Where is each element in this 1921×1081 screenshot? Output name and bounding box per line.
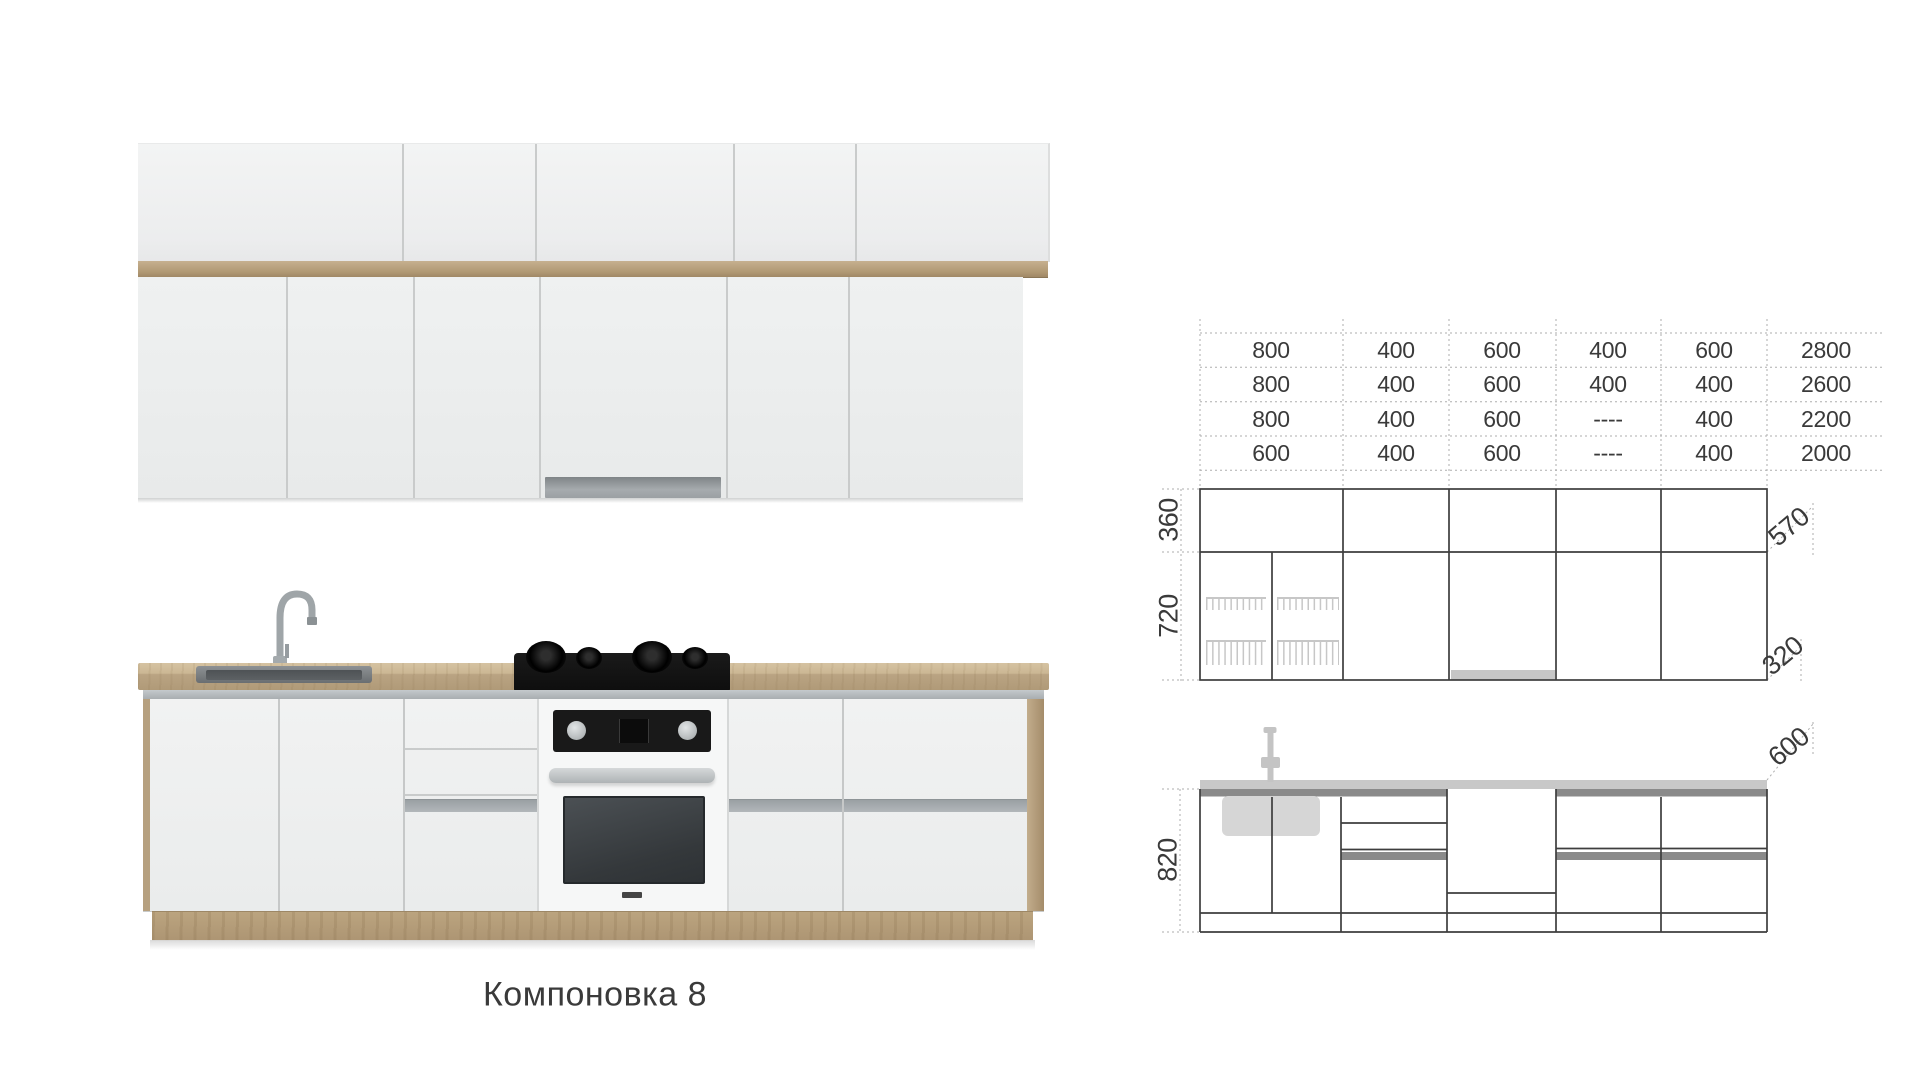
door-seam	[726, 277, 728, 498]
wall-cabinet-shadow	[138, 498, 1023, 503]
oven-control-panel	[553, 710, 711, 752]
drawer-seam	[403, 748, 537, 750]
base-elevation-drawing	[1200, 727, 1767, 932]
door-seam	[855, 144, 857, 262]
side-panel	[1027, 699, 1044, 911]
oven-knob	[567, 721, 586, 740]
wall-cabinet-wood-trim	[138, 261, 1048, 278]
door-seam	[413, 277, 415, 498]
door-seam	[537, 699, 539, 911]
wall-cabinets-top-row	[138, 143, 1050, 262]
door-seam	[733, 144, 735, 262]
wall-cabinets-bottom-row	[138, 277, 1023, 498]
sink-bowl	[206, 670, 362, 680]
wall-elevation-drawing	[1200, 489, 1767, 680]
side-panel	[143, 699, 150, 911]
door-seam	[286, 277, 288, 498]
sink	[196, 666, 372, 683]
handle-strip	[1341, 852, 1447, 860]
burner	[526, 641, 566, 673]
door-seam	[842, 699, 844, 911]
burner	[632, 641, 672, 673]
door-seam	[848, 277, 850, 498]
drawer-seam	[403, 794, 537, 796]
door-seam	[539, 277, 541, 498]
kitchen-layout-sheet: Компоновка 8 800 400 600 400 600 2800 80…	[0, 0, 1921, 1081]
dim-label-720: 720	[1154, 594, 1185, 638]
burner	[576, 647, 602, 669]
door-seam	[403, 699, 405, 911]
oven-handle	[549, 768, 715, 783]
gas-hob	[514, 653, 730, 691]
layout-title: Компоновка 8	[483, 976, 707, 1015]
oven-door-window	[563, 796, 705, 884]
oven-knob	[678, 721, 697, 740]
door-seam	[535, 144, 537, 262]
door-seam	[402, 144, 404, 262]
handle-profile-strip	[143, 690, 1044, 699]
burner	[682, 647, 708, 669]
recessed-handle	[403, 799, 537, 812]
dim-label-360: 360	[1154, 498, 1185, 542]
door-seam	[278, 699, 280, 911]
handle-strip	[1200, 789, 1447, 797]
countertop-bar	[1200, 780, 1767, 789]
oven-logo-badge	[622, 892, 642, 898]
faucet-symbol	[1261, 727, 1280, 782]
built-in-oven	[537, 699, 727, 911]
door-seam	[727, 699, 729, 911]
oven-display	[619, 719, 649, 743]
plinth	[152, 911, 1033, 941]
base-cabinets	[143, 699, 1044, 912]
handle-strip	[1556, 789, 1767, 797]
sink-symbol	[1222, 796, 1320, 836]
recessed-handle	[727, 799, 1027, 812]
hood-vent-bar	[1451, 670, 1555, 680]
elevation-drawings	[1130, 300, 1900, 960]
cooker-hood-vent	[545, 477, 721, 498]
dimension-lines	[1162, 319, 1885, 934]
dim-label-820: 820	[1153, 838, 1184, 882]
faucet-icon	[270, 584, 320, 670]
floor-shadow	[150, 940, 1035, 950]
